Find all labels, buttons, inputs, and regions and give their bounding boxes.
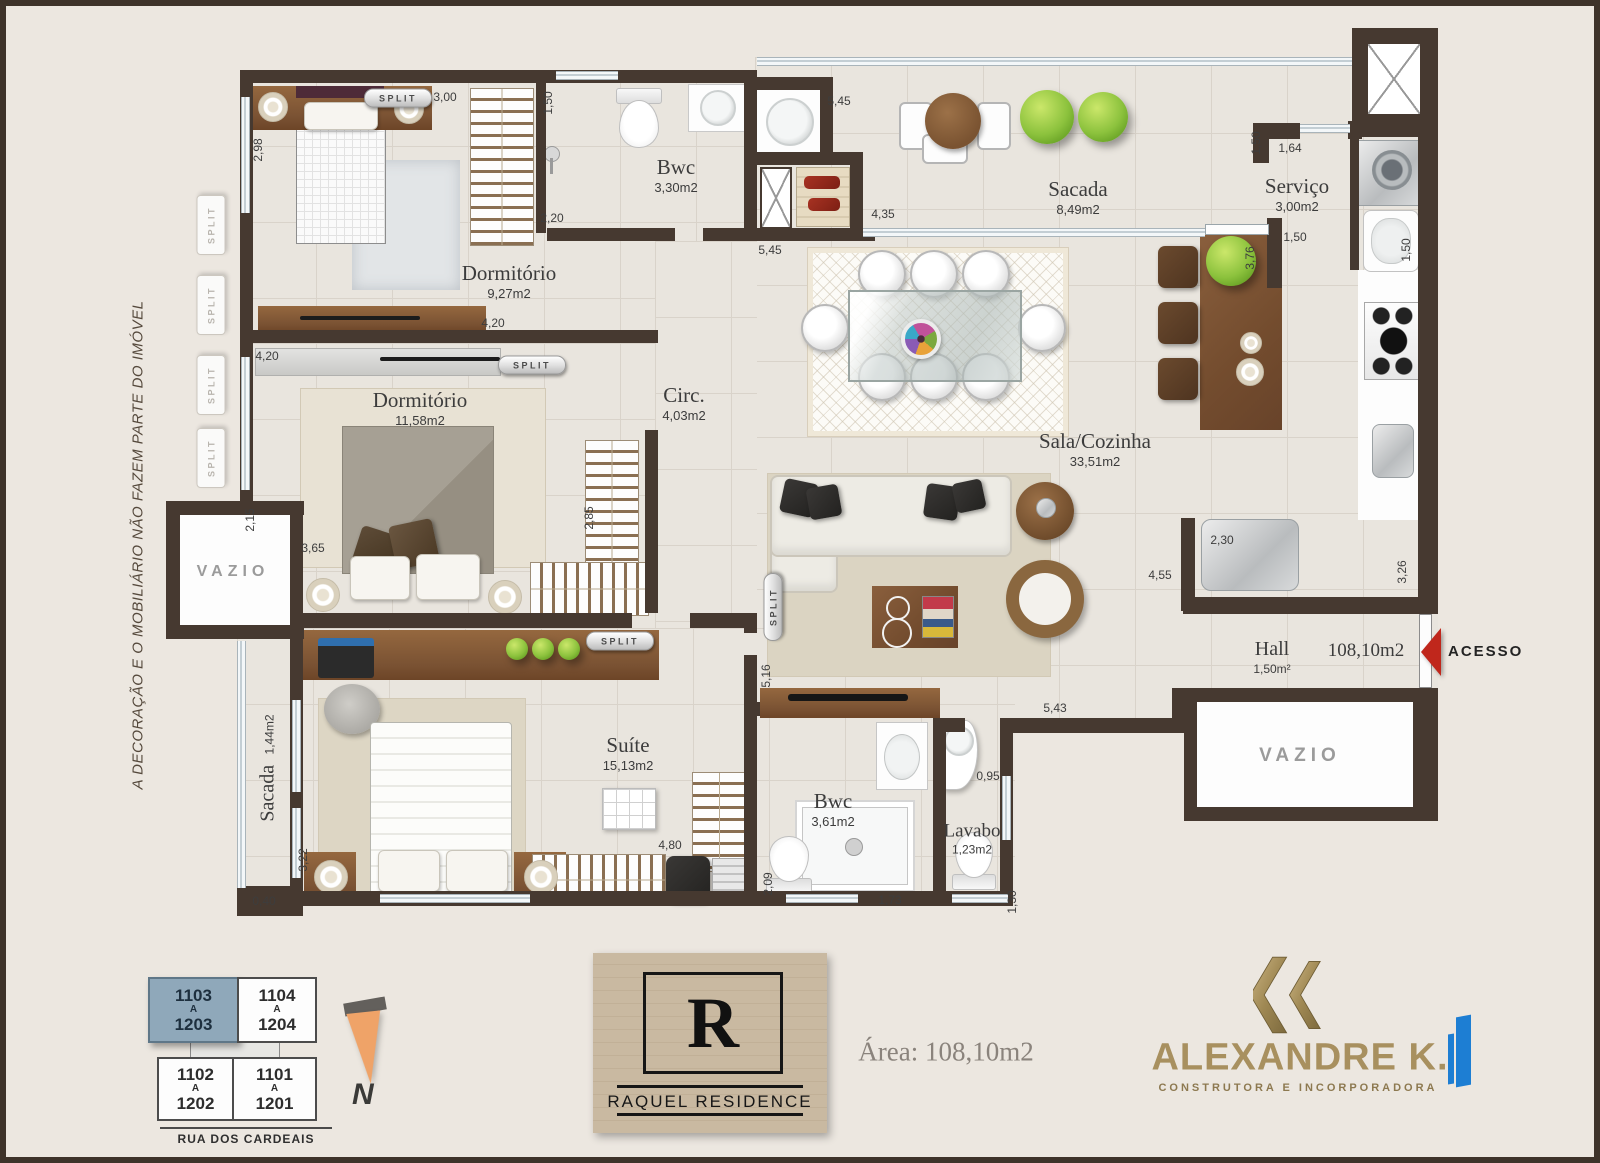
dimension-label: 1,50 bbox=[541, 91, 555, 114]
decor-line bbox=[300, 316, 420, 320]
room-label-hall: Hall 1,50m² bbox=[1253, 638, 1290, 676]
wall bbox=[744, 152, 757, 241]
room-label-bwc1: Bwc 3,30m2 bbox=[654, 155, 697, 195]
dimension-label: 5,45 bbox=[827, 94, 850, 108]
room-name: Bwc bbox=[654, 155, 697, 180]
unit-mid: A bbox=[273, 1005, 280, 1015]
stool bbox=[1158, 358, 1198, 400]
dimension-label: 1,50 bbox=[1249, 131, 1263, 154]
wall bbox=[166, 501, 304, 515]
dimension-label: 5,45 bbox=[758, 243, 781, 257]
room-name: Sacada bbox=[257, 765, 279, 822]
wall bbox=[1350, 137, 1359, 270]
room-name: Dormitório bbox=[462, 261, 557, 286]
dimension-label: 4,20 bbox=[481, 316, 504, 330]
dimension-label: 4,80 bbox=[658, 838, 681, 852]
unit-number: 1103 bbox=[175, 987, 212, 1004]
room-area: 1,50m² bbox=[1253, 662, 1290, 676]
dimension-label: 0,95 bbox=[976, 769, 999, 783]
unit-number: 1102 bbox=[177, 1066, 214, 1083]
stool bbox=[1158, 302, 1198, 344]
dining-chair bbox=[801, 304, 849, 352]
raquel-logo: R RAQUEL RESIDENCE bbox=[593, 953, 827, 1133]
shaft-icon bbox=[760, 167, 792, 229]
dimension-label: 1,73 bbox=[878, 893, 901, 907]
room-name: Lavabo bbox=[944, 821, 1001, 843]
unit-mid: A bbox=[271, 1084, 278, 1094]
pillow bbox=[416, 554, 480, 600]
wall bbox=[1352, 121, 1438, 137]
divider bbox=[617, 1113, 803, 1116]
dimension-label: 3,76 bbox=[1243, 246, 1257, 269]
room-area: 33,51m2 bbox=[1039, 454, 1151, 469]
sliding-door-leaf bbox=[1205, 224, 1269, 235]
wall bbox=[1184, 807, 1438, 821]
room-label-dorm2: Dormitório 11,58m2 bbox=[373, 388, 468, 428]
dimension-label: 3,65 bbox=[301, 541, 324, 555]
room-label-dorm1: Dormitório 9,27m2 bbox=[462, 261, 557, 301]
plant bbox=[532, 638, 554, 660]
split-badge: SPLIT bbox=[364, 89, 432, 108]
room-name: Hall bbox=[1253, 638, 1290, 662]
stool bbox=[1158, 246, 1198, 288]
wall bbox=[1184, 688, 1413, 702]
wall bbox=[1348, 121, 1362, 139]
unit-number: 1202 bbox=[177, 1095, 215, 1112]
wall bbox=[166, 625, 304, 639]
floor-circ bbox=[655, 241, 757, 628]
room-label-sala: Sala/Cozinha 33,51m2 bbox=[1039, 429, 1151, 469]
room-label-lavabo: Lavabo 1,23m2 bbox=[944, 821, 1001, 858]
vazio1-label: VAZIO bbox=[197, 563, 270, 581]
wall bbox=[850, 152, 863, 241]
kitchen-sink bbox=[1372, 424, 1414, 478]
room-label-servico: Serviço 3,00m2 bbox=[1265, 174, 1329, 214]
wall bbox=[757, 152, 863, 165]
room-area: 8,49m2 bbox=[1048, 202, 1107, 217]
split-badge: SPLIT bbox=[764, 573, 783, 641]
window bbox=[241, 357, 250, 490]
lamp bbox=[314, 860, 348, 894]
plant bbox=[558, 638, 580, 660]
acesso-arrow-icon bbox=[1421, 628, 1441, 676]
dimension-label: 0,40 bbox=[252, 894, 275, 908]
unit-number: 1201 bbox=[256, 1095, 294, 1112]
pillow bbox=[350, 556, 410, 600]
lamp bbox=[306, 578, 340, 612]
unit-mid: A bbox=[190, 1005, 197, 1015]
decor-ring bbox=[882, 618, 912, 648]
area-text: Área: 108,10m2 bbox=[858, 1037, 1033, 1068]
room-label-sacada2: Sacada 1,44m2 bbox=[257, 714, 280, 821]
window bbox=[786, 894, 858, 903]
split-condenser-unit: SPLIT bbox=[197, 428, 226, 488]
wall bbox=[1413, 688, 1438, 821]
plant bbox=[506, 638, 528, 660]
pillow bbox=[378, 850, 440, 892]
room-label-bwc2: Bwc 3,61m2 bbox=[811, 789, 854, 829]
street-line bbox=[160, 1127, 332, 1129]
wall bbox=[744, 613, 757, 633]
divider bbox=[617, 1085, 803, 1088]
plant bbox=[1078, 92, 1128, 142]
raquel-initial: R bbox=[687, 987, 739, 1059]
dimension-label: 3,26 bbox=[1395, 560, 1409, 583]
disclaimer-text: A DECORAÇÃO E O MOBILIÁRIO NÃO FAZEM PAR… bbox=[130, 301, 147, 790]
shower-head-icon bbox=[845, 838, 863, 856]
dimension-label: 1,30 bbox=[1005, 890, 1019, 913]
dimension-label: 2,98 bbox=[251, 138, 265, 161]
wall bbox=[292, 613, 632, 628]
dimension-label: 4,35 bbox=[871, 207, 894, 221]
window bbox=[241, 97, 250, 213]
room-label-suite: Suíte 15,13m2 bbox=[603, 733, 654, 773]
pillow bbox=[446, 850, 508, 892]
room-area: 3,30m2 bbox=[654, 180, 697, 195]
sliding-door bbox=[863, 228, 1205, 237]
decor-ring bbox=[886, 596, 910, 620]
magazine bbox=[922, 596, 954, 638]
dimension-label: 4,20 bbox=[255, 349, 278, 363]
window bbox=[556, 71, 618, 80]
balcony-railing bbox=[237, 641, 246, 888]
service-door bbox=[1300, 124, 1350, 133]
north-label: N bbox=[352, 1078, 374, 1112]
plant bbox=[1020, 90, 1074, 144]
shaft-icon bbox=[1366, 42, 1422, 116]
wall bbox=[933, 718, 946, 905]
lamp bbox=[258, 92, 288, 122]
builder-building-icon bbox=[1448, 1033, 1454, 1084]
dimension-label: 2,15 bbox=[243, 508, 257, 531]
room-name: Serviço bbox=[1265, 174, 1329, 199]
acesso-label: ACESSO bbox=[1448, 643, 1523, 660]
window bbox=[952, 894, 1008, 903]
unit-number: 1101 bbox=[256, 1066, 293, 1083]
bowl bbox=[1236, 358, 1264, 386]
builder-name: ALEXANDRE K. bbox=[1151, 1037, 1448, 1080]
wall bbox=[547, 228, 675, 241]
dining-chair bbox=[1018, 304, 1066, 352]
stove bbox=[1364, 302, 1420, 380]
wardrobe bbox=[530, 562, 649, 616]
kitchen-sink bbox=[766, 98, 814, 146]
balcony-door bbox=[292, 700, 301, 792]
wall bbox=[1184, 688, 1197, 821]
split-badge: SPLIT bbox=[586, 632, 654, 651]
table-lamp bbox=[1036, 498, 1056, 518]
wall bbox=[240, 70, 757, 83]
dimension-label: 2,20 bbox=[540, 211, 563, 225]
wall bbox=[1267, 218, 1282, 288]
split-condenser-unit: SPLIT bbox=[197, 195, 226, 255]
balcony-railing bbox=[757, 57, 1352, 66]
wall bbox=[240, 330, 658, 343]
wardrobe bbox=[585, 440, 639, 566]
floorplan-page: Dormitório 9,27m2 Bwc 3,30m2 Sacada 8,49… bbox=[0, 0, 1600, 1163]
room-area: 9,27m2 bbox=[462, 286, 557, 301]
builder-chevrons-icon bbox=[1253, 955, 1337, 1035]
centerpiece bbox=[901, 319, 941, 359]
total-area-value: 108,10m2 bbox=[1328, 640, 1405, 662]
sink bbox=[700, 90, 736, 126]
lamp bbox=[488, 580, 522, 614]
armchair bbox=[1006, 560, 1084, 638]
cushion bbox=[805, 483, 842, 520]
room-label-sacada1: Sacada 8,49m2 bbox=[1048, 177, 1107, 217]
room-area: 3,00m2 bbox=[1265, 199, 1329, 214]
tv bbox=[788, 694, 908, 701]
split-condenser-unit: SPLIT bbox=[197, 355, 226, 415]
room-area: 11,58m2 bbox=[373, 413, 468, 428]
grill-meat bbox=[808, 198, 840, 211]
split-condenser-unit: SPLIT bbox=[197, 275, 226, 335]
washer-door-icon bbox=[1372, 150, 1412, 190]
room-area: 1,23m2 bbox=[944, 843, 1001, 857]
room-name: Sacada bbox=[1048, 177, 1107, 202]
room-area: 1,44m2 bbox=[263, 714, 277, 754]
split-badge: SPLIT bbox=[498, 356, 566, 375]
unit-number: 1204 bbox=[258, 1016, 296, 1033]
north-arrow-icon bbox=[346, 1010, 387, 1085]
window bbox=[1002, 776, 1011, 840]
lamp bbox=[524, 860, 558, 894]
builder-sub: CONSTRUTORA E INCORPORADORA bbox=[1158, 1082, 1437, 1094]
grill-meat bbox=[804, 176, 840, 189]
wall bbox=[1010, 718, 1185, 733]
keyplan-unit-1104: 1104 A 1204 bbox=[237, 977, 317, 1043]
wall bbox=[744, 655, 757, 905]
dimension-label: 1,64 bbox=[1278, 141, 1301, 155]
dimension-label: 2,85 bbox=[582, 506, 596, 529]
dimension-label: 4,55 bbox=[1148, 568, 1171, 582]
dimension-label: 5,16 bbox=[759, 664, 773, 687]
room-label-circ: Circ. 4,03m2 bbox=[662, 383, 705, 423]
decor-line bbox=[380, 357, 500, 361]
unit-number: 1104 bbox=[259, 987, 296, 1004]
dimension-label: 1,50 bbox=[1399, 238, 1413, 261]
bowl bbox=[1240, 332, 1262, 354]
raquel-initial-box: R bbox=[643, 972, 783, 1074]
shower-arm-icon bbox=[550, 158, 553, 174]
dimension-label: 2,30 bbox=[1210, 533, 1233, 547]
dimension-label: 1,50 bbox=[1283, 230, 1306, 244]
raquel-name: RAQUEL RESIDENCE bbox=[607, 1092, 812, 1112]
sideboard bbox=[255, 348, 501, 376]
wall bbox=[1183, 597, 1438, 614]
unit-number: 1203 bbox=[175, 1016, 213, 1033]
fridge bbox=[1201, 519, 1299, 591]
laptop bbox=[318, 638, 374, 678]
pillow bbox=[304, 102, 378, 130]
patio-chair bbox=[977, 102, 1011, 150]
wall bbox=[744, 70, 757, 165]
room-area: 15,13m2 bbox=[603, 758, 654, 773]
room-name: Circ. bbox=[662, 383, 705, 408]
wardrobe bbox=[470, 88, 534, 246]
dimension-label: 3,22 bbox=[296, 848, 310, 871]
wall bbox=[645, 430, 658, 613]
sink bbox=[884, 734, 920, 780]
wall bbox=[1418, 130, 1438, 612]
keyplan-unit-1103: 1103 A 1203 bbox=[148, 977, 239, 1043]
keyplan-unit-1102: 1102 A 1202 bbox=[157, 1057, 234, 1121]
cushion bbox=[951, 478, 987, 514]
dimension-label: 5,43 bbox=[1043, 701, 1066, 715]
room-name: Suíte bbox=[603, 733, 654, 758]
wall bbox=[166, 501, 180, 639]
unit-mid: A bbox=[192, 1084, 199, 1094]
total-area-label: 108,10m2 bbox=[1328, 640, 1405, 662]
room-name: Dormitório bbox=[373, 388, 468, 413]
vazio2-label: VAZIO bbox=[1259, 745, 1341, 767]
room-name: Sala/Cozinha bbox=[1039, 429, 1151, 454]
toilet bbox=[616, 88, 662, 148]
round-table bbox=[925, 93, 981, 149]
room-area: 3,61m2 bbox=[811, 814, 854, 829]
shoe-rack bbox=[602, 788, 656, 830]
room-name: Bwc bbox=[811, 789, 854, 814]
street-label: RUA DOS CARDEAIS bbox=[178, 1132, 315, 1146]
dimension-label: 3,00 bbox=[433, 90, 456, 104]
dimension-label: 2,09 bbox=[761, 872, 775, 895]
window bbox=[380, 894, 530, 903]
builder-building-icon bbox=[1456, 1015, 1471, 1088]
tv-rack bbox=[760, 688, 940, 718]
keyplan-unit-1101: 1101 A 1201 bbox=[232, 1057, 317, 1121]
room-area: 4,03m2 bbox=[662, 408, 705, 423]
